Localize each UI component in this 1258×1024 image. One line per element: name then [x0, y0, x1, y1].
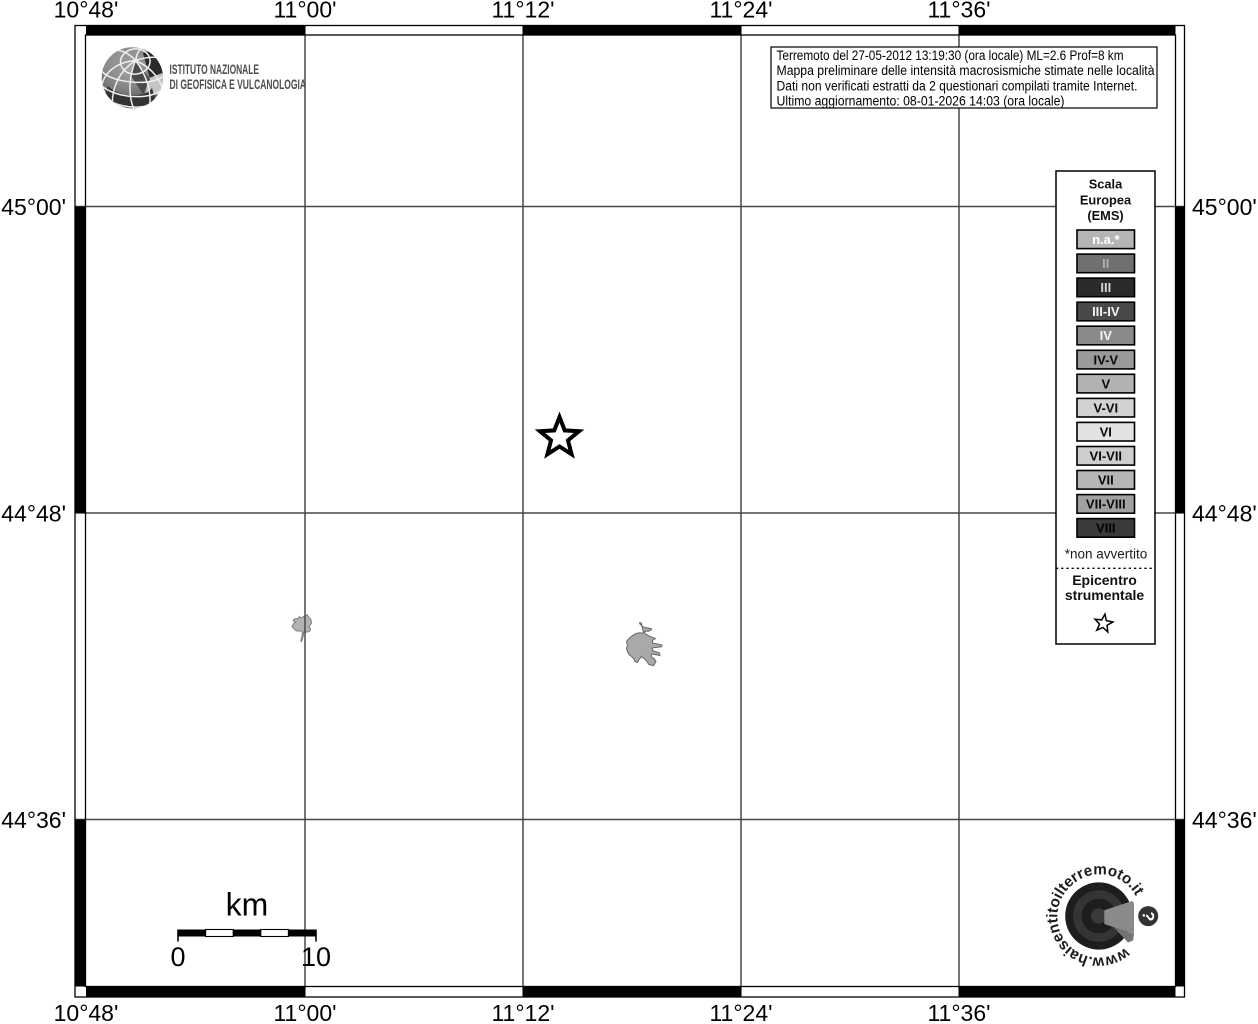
- svg-text:V-VI: V-VI: [1094, 400, 1119, 415]
- svg-text:Ultimo aggiornamento: 08-01-20: Ultimo aggiornamento: 08-01-2026 14:03 (…: [777, 94, 1065, 109]
- svg-text:n.a.*: n.a.*: [1092, 232, 1120, 247]
- svg-text:VII-VIII: VII-VIII: [1086, 497, 1126, 512]
- svg-text:DI GEOFISICA E VULCANOLOGIA: DI GEOFISICA E VULCANOLOGIA: [170, 76, 307, 92]
- svg-text:44°48': 44°48': [1, 501, 66, 527]
- svg-text:(EMS): (EMS): [1087, 208, 1123, 223]
- svg-text:44°36': 44°36': [1192, 807, 1257, 833]
- svg-text:IV-V: IV-V: [1094, 352, 1119, 367]
- svg-text:11°36': 11°36': [927, 0, 990, 23]
- svg-text:11°00': 11°00': [273, 1000, 336, 1024]
- svg-text:11°24': 11°24': [709, 0, 772, 23]
- svg-text:10°48': 10°48': [54, 0, 119, 23]
- svg-text:45°00': 45°00': [1192, 194, 1257, 220]
- svg-text:IV: IV: [1100, 328, 1113, 343]
- svg-text:III: III: [1100, 280, 1111, 295]
- svg-text:km: km: [226, 887, 269, 923]
- svg-text:Mappa preliminare delle intens: Mappa preliminare delle intensità macros…: [777, 63, 1156, 78]
- svg-text:?: ?: [1138, 910, 1157, 922]
- svg-text:11°36': 11°36': [927, 1000, 990, 1024]
- svg-text:11°00': 11°00': [273, 0, 336, 23]
- svg-text:Dati non verificati estratti d: Dati non verificati estratti da 2 questi…: [777, 78, 1138, 93]
- svg-text:V: V: [1101, 376, 1110, 391]
- svg-text:44°36': 44°36': [1, 807, 66, 833]
- svg-text:Europea: Europea: [1080, 192, 1132, 207]
- svg-text:10: 10: [301, 942, 331, 972]
- svg-text:45°00': 45°00': [1, 194, 66, 220]
- svg-text:11°24': 11°24': [709, 1000, 772, 1024]
- svg-text:III-IV: III-IV: [1092, 304, 1120, 319]
- svg-text:VII: VII: [1098, 473, 1114, 488]
- svg-text:Scala: Scala: [1089, 177, 1123, 192]
- svg-text:11°12': 11°12': [491, 1000, 554, 1024]
- svg-text:VI-VII: VI-VII: [1090, 449, 1123, 464]
- svg-text:II: II: [1102, 256, 1109, 271]
- svg-text:10°48': 10°48': [54, 1000, 119, 1024]
- svg-text:VI: VI: [1100, 424, 1112, 439]
- svg-text:0: 0: [170, 942, 185, 972]
- svg-text:VIII: VIII: [1096, 521, 1116, 536]
- svg-text:11°12': 11°12': [491, 0, 554, 23]
- svg-text:Epicentro: Epicentro: [1072, 572, 1137, 588]
- svg-text:Terremoto del 27-05-2012 13:19: Terremoto del 27-05-2012 13:19:30 (ora l…: [777, 48, 1124, 63]
- svg-text:*non avvertito: *non avvertito: [1065, 547, 1148, 562]
- svg-text:strumentale: strumentale: [1065, 587, 1145, 603]
- svg-text:44°48': 44°48': [1192, 501, 1257, 527]
- svg-text:ISTITUTO NAZIONALE: ISTITUTO NAZIONALE: [170, 61, 260, 77]
